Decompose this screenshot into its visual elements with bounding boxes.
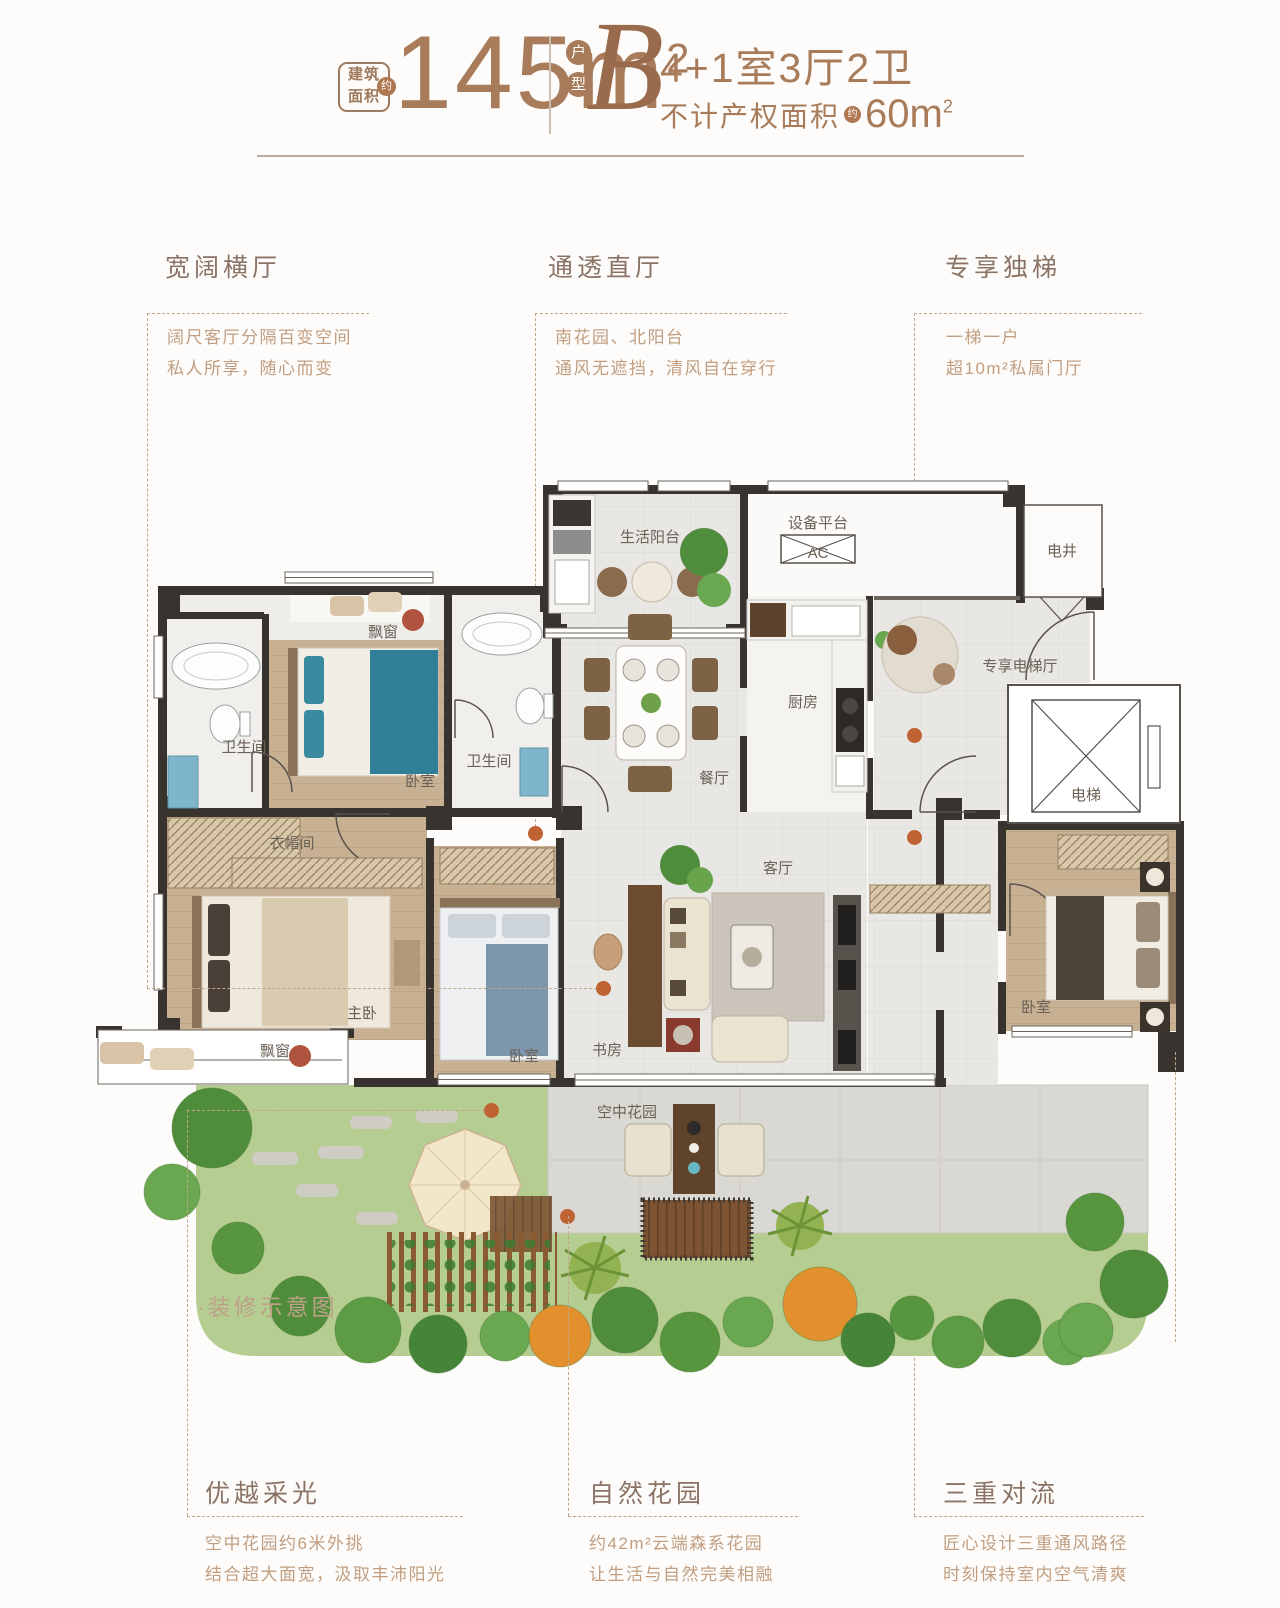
leader-h-lighting-plan	[187, 1110, 484, 1111]
feature-title-garden: 自然花园	[589, 1474, 705, 1510]
feature-desc-line: 匠心设计三重通风路径	[943, 1528, 1128, 1559]
label-lift-hall: 专享电梯厅	[982, 658, 1057, 675]
label-kitchen: 厨房	[788, 694, 818, 711]
leader-v-lighting	[187, 1110, 188, 1516]
feature-title-convection: 三重对流	[943, 1474, 1059, 1510]
label-ac: AC	[808, 545, 829, 562]
label-bedroom-3: 卧室	[1021, 999, 1051, 1016]
feature-desc-line: 约42m²云端森系花园	[589, 1528, 774, 1559]
feature-desc-convection: 匠心设计三重通风路径 时刻保持室内空气清爽	[943, 1528, 1128, 1590]
label-dining: 餐厅	[699, 770, 729, 787]
lift-hall-furniture	[882, 617, 958, 693]
garden-deck	[643, 1200, 751, 1258]
leader-dot-wide-hall	[596, 981, 611, 996]
label-life-balcony: 生活阳台	[620, 529, 680, 546]
leader-v-right-edge	[1175, 1052, 1176, 1342]
feature-desc-line: 结合超大面宽，汲取丰沛阳光	[205, 1559, 446, 1590]
feature-desc-garden: 约42m²云端森系花园 让生活与自然完美相融	[589, 1528, 774, 1590]
label-sky-garden: 空中花园	[597, 1104, 657, 1121]
leader-h-wide-hall-2	[147, 988, 602, 989]
label-bay-window-2: 飘窗	[260, 1042, 290, 1060]
garden-fence-plot	[385, 1232, 557, 1312]
leader-h-garden	[568, 1516, 798, 1517]
feature-desc-lighting: 空中花园约6米外挑 结合超大面宽，汲取丰沛阳光	[205, 1528, 446, 1590]
label-bath-1: 卫生间	[221, 739, 266, 756]
label-study: 书房	[592, 1042, 622, 1059]
label-bath-2: 卫生间	[466, 753, 511, 770]
leader-dot-convection	[907, 830, 922, 845]
floorplan-page: 建筑 面积 约 145m2 户 型 B 4+1室3厅2卫 不计产权面积 约 60…	[0, 0, 1280, 1608]
leader-h-lighting	[187, 1516, 463, 1517]
feature-desc-line: 空中花园约6米外挑	[205, 1528, 446, 1559]
bedroom-2-bed	[440, 898, 560, 1060]
label-cloakroom: 衣帽间	[269, 835, 314, 852]
label-bay-window-1: 飘窗	[368, 623, 398, 641]
feature-desc-line: 让生活与自然完美相融	[589, 1559, 774, 1590]
leader-v-garden	[568, 1216, 569, 1516]
feature-title-lighting: 优越采光	[205, 1474, 321, 1510]
label-living: 客厅	[763, 860, 793, 877]
label-shaft: 电井	[1047, 543, 1077, 560]
label-bedroom-1: 卧室	[405, 773, 435, 790]
label-bedroom-2: 卧室	[509, 1048, 539, 1065]
floor-plan: 生活阳台 设备平台 AC 电井 卫生间 飘窗 卧室 卫生间 餐厅 厨房 专享电梯…	[0, 0, 1280, 1608]
leader-h-convection	[914, 1516, 1144, 1517]
room-corridor	[868, 815, 998, 1085]
leader-dot-lighting	[484, 1103, 499, 1118]
room-sky-garden	[144, 1085, 1168, 1373]
leader-dot-through-hall	[528, 826, 543, 841]
label-lift: 电梯	[1071, 787, 1101, 804]
label-master: 主卧	[347, 1005, 377, 1022]
label-equipment-platform: 设备平台	[788, 515, 848, 532]
decor-note: ·装修示意图	[197, 1288, 338, 1322]
feature-desc-line: 时刻保持室内空气清爽	[943, 1559, 1128, 1590]
leader-dot-private-lift	[907, 728, 922, 743]
